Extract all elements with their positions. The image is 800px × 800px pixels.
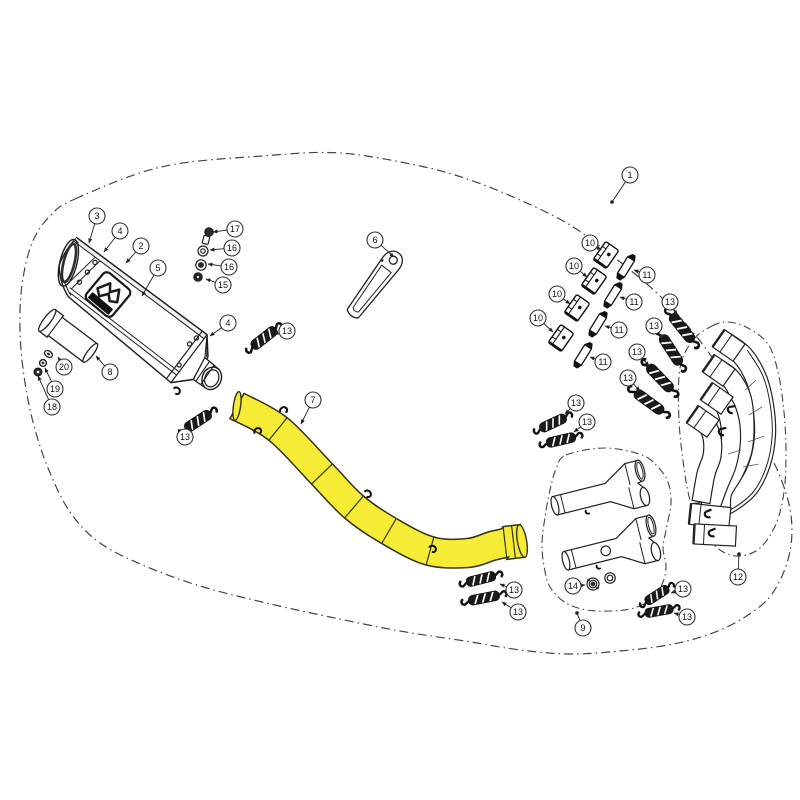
svg-text:9: 9 bbox=[580, 623, 585, 633]
svg-text:10: 10 bbox=[533, 313, 543, 323]
svg-text:5: 5 bbox=[155, 263, 160, 273]
svg-text:15: 15 bbox=[218, 280, 228, 290]
svg-text:6: 6 bbox=[372, 235, 377, 245]
svg-text:1: 1 bbox=[627, 170, 632, 180]
svg-text:13: 13 bbox=[282, 326, 292, 336]
svg-text:7: 7 bbox=[310, 395, 315, 405]
svg-text:10: 10 bbox=[585, 238, 595, 248]
svg-text:12: 12 bbox=[733, 572, 743, 582]
svg-text:17: 17 bbox=[230, 224, 240, 234]
svg-text:11: 11 bbox=[598, 357, 607, 367]
svg-text:3: 3 bbox=[94, 211, 99, 221]
svg-text:11: 11 bbox=[614, 325, 623, 335]
svg-text:13: 13 bbox=[509, 585, 519, 595]
svg-text:11: 11 bbox=[629, 297, 638, 307]
svg-text:20: 20 bbox=[59, 362, 69, 372]
svg-text:13: 13 bbox=[682, 612, 692, 622]
svg-text:4: 4 bbox=[117, 226, 122, 236]
svg-text:13: 13 bbox=[513, 607, 523, 617]
svg-text:14: 14 bbox=[568, 581, 578, 591]
svg-text:4: 4 bbox=[225, 318, 230, 328]
svg-text:13: 13 bbox=[665, 297, 675, 307]
svg-text:2: 2 bbox=[138, 241, 143, 251]
svg-text:10: 10 bbox=[552, 289, 562, 299]
svg-text:19: 19 bbox=[50, 384, 60, 394]
svg-text:8: 8 bbox=[107, 367, 112, 377]
svg-text:18: 18 bbox=[47, 402, 57, 412]
svg-text:13: 13 bbox=[582, 417, 592, 427]
svg-text:13: 13 bbox=[649, 321, 659, 331]
svg-text:13: 13 bbox=[180, 432, 190, 442]
svg-text:16: 16 bbox=[227, 243, 237, 253]
svg-text:10: 10 bbox=[569, 261, 579, 271]
svg-text:13: 13 bbox=[571, 398, 581, 408]
svg-text:13: 13 bbox=[623, 373, 633, 383]
svg-text:11: 11 bbox=[642, 270, 651, 280]
svg-text:16: 16 bbox=[224, 262, 234, 272]
svg-text:13: 13 bbox=[678, 584, 688, 594]
svg-text:13: 13 bbox=[632, 347, 642, 357]
